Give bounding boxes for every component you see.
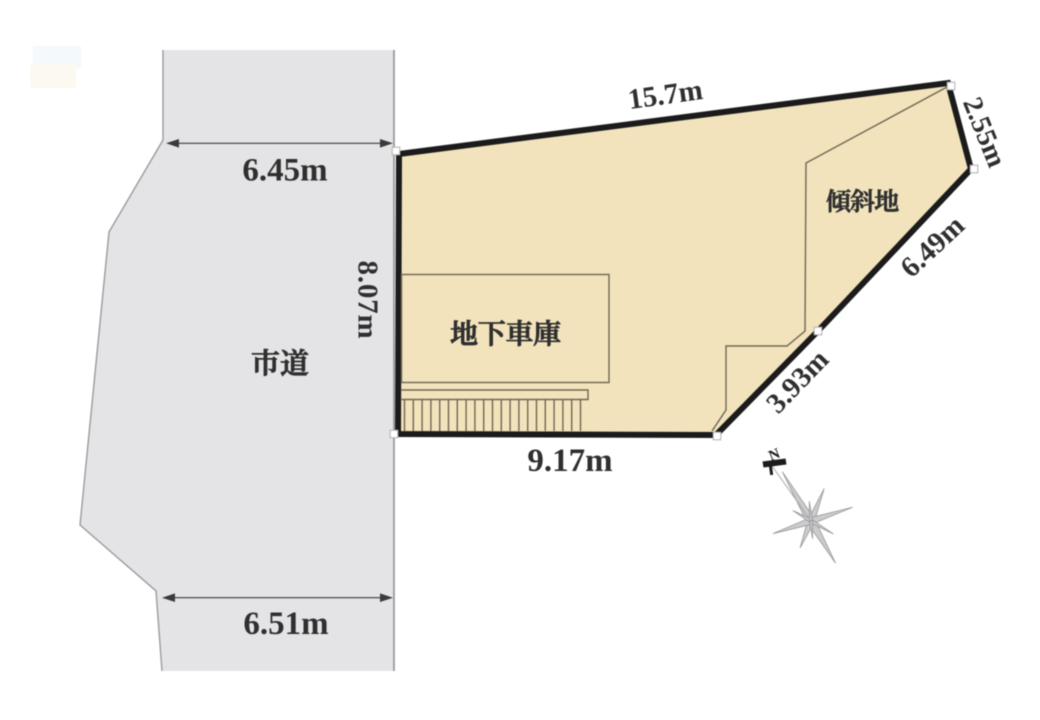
svg-text:6.45m: 6.45m bbox=[242, 153, 327, 189]
svg-text:8.07m: 8.07m bbox=[352, 261, 384, 340]
svg-text:9.17m: 9.17m bbox=[527, 443, 612, 479]
svg-text:15.7m: 15.7m bbox=[626, 74, 705, 116]
svg-text:6.51m: 6.51m bbox=[243, 606, 328, 642]
